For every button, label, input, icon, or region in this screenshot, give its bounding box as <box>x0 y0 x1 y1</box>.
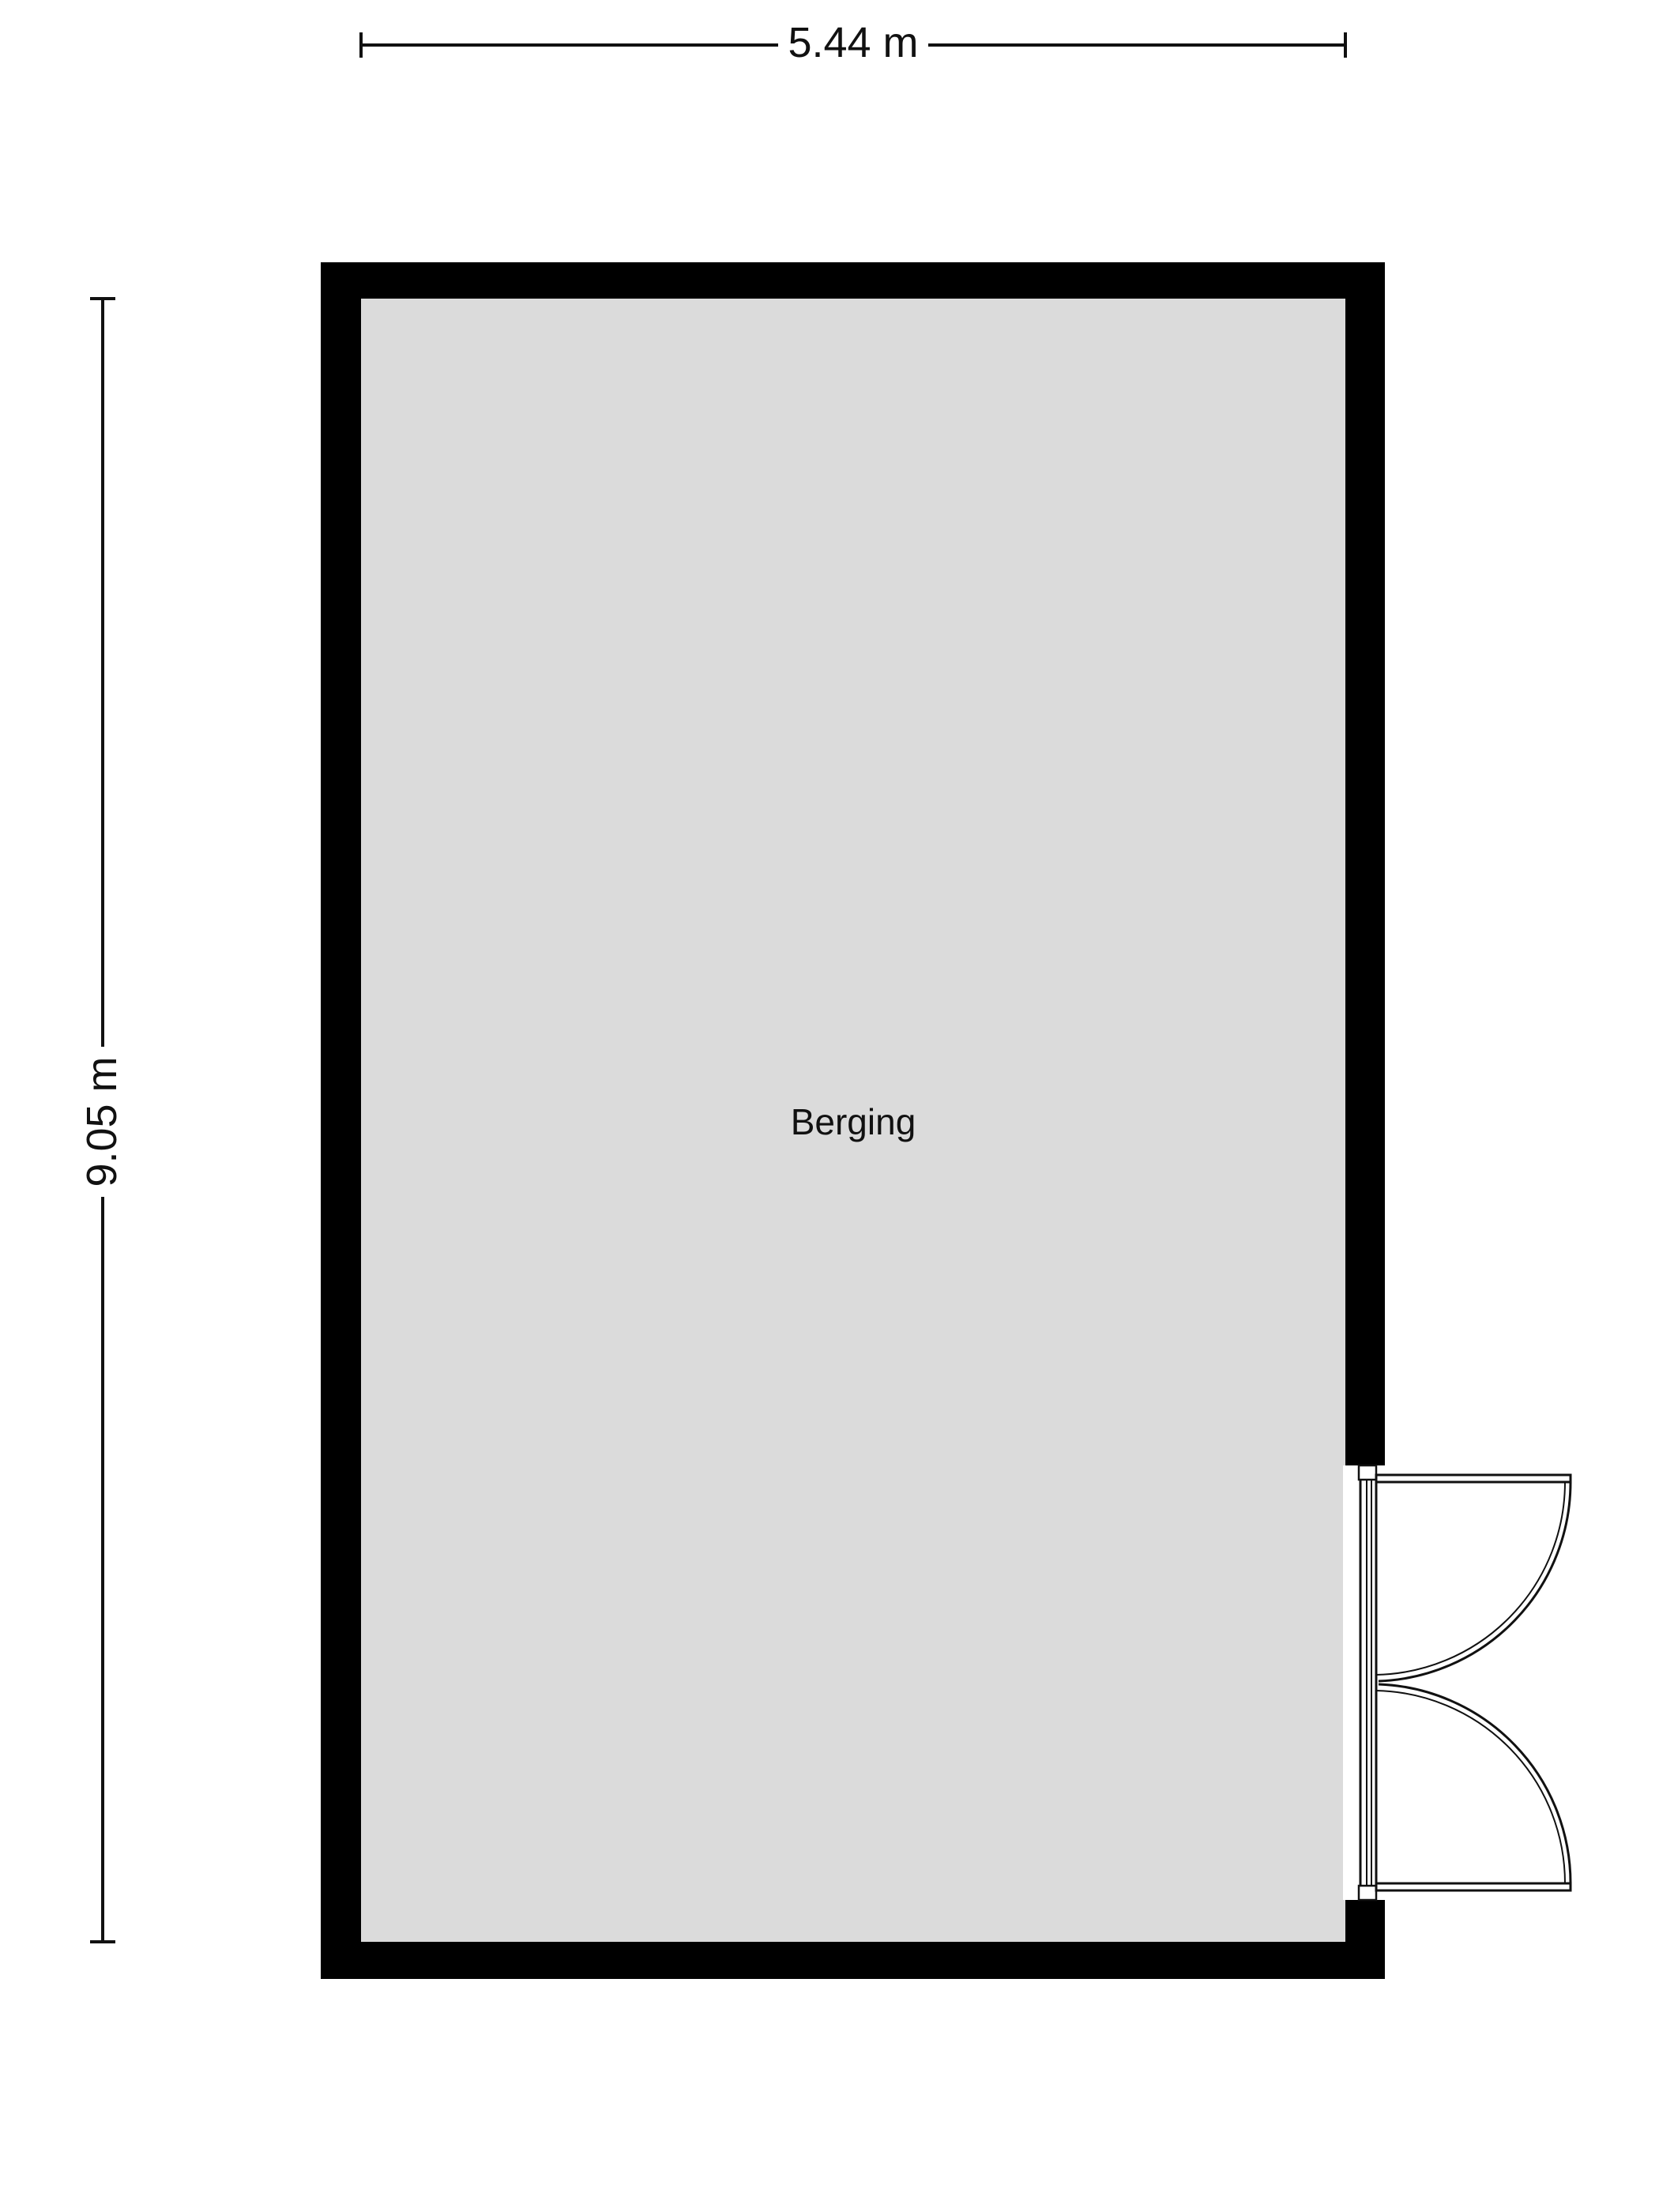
door-jamb-top <box>1359 1465 1376 1480</box>
door-leaf-top <box>1376 1475 1571 1482</box>
door-swing-arc-top <box>1379 1482 1571 1681</box>
door-swing-arc-bottom <box>1379 1684 1571 1883</box>
door-swing-arc-bottom-inner <box>1376 1691 1565 1883</box>
floor-plan: 5.44 m 9.05 m <box>0 0 1659 2212</box>
door-leaf-bottom <box>1376 1883 1571 1890</box>
left-dimension-label: 9.05 m <box>78 1056 126 1187</box>
top-dimension-label: 5.44 m <box>788 19 918 66</box>
floor-plan-drawing: 5.44 m 9.05 m <box>0 0 1659 2212</box>
door-swing-arc-top-inner <box>1376 1482 1565 1675</box>
double-door <box>1376 1475 1571 1890</box>
room-label-berging: Berging <box>791 1101 916 1142</box>
door-jamb-bottom <box>1359 1886 1376 1900</box>
